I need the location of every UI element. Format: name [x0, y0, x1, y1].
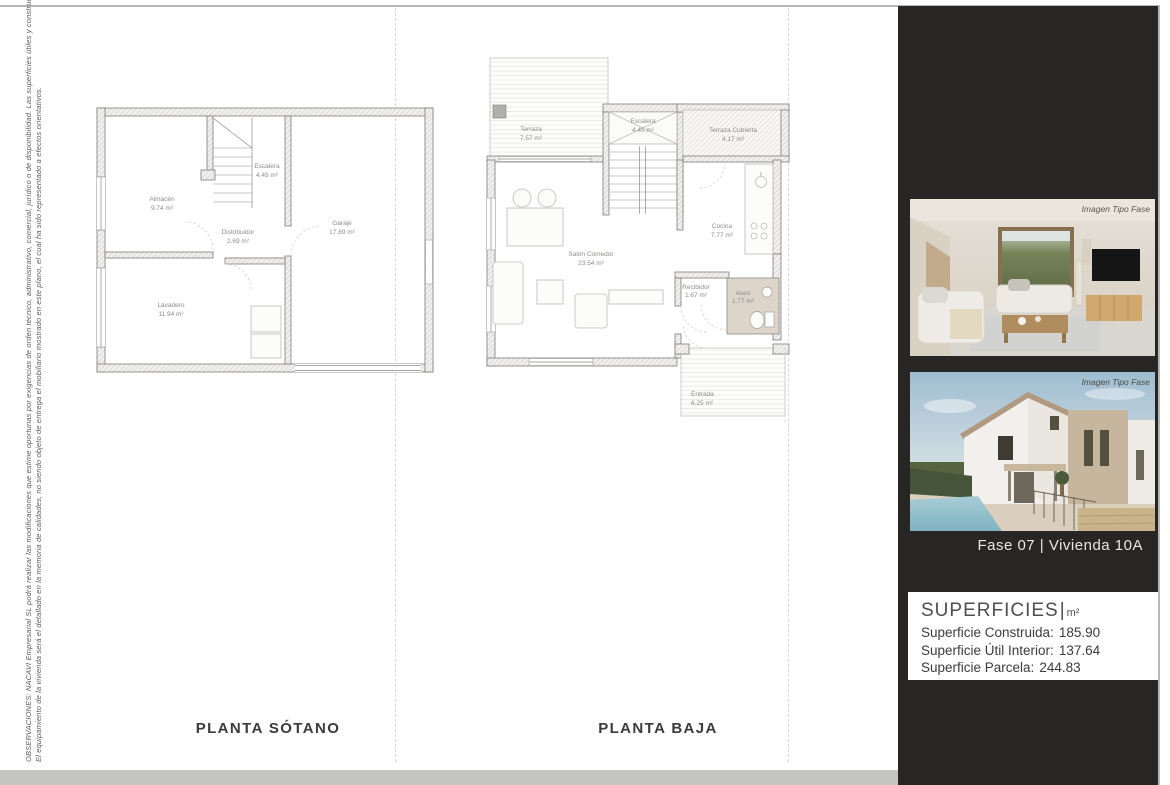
baja-cocina-fixtures [745, 164, 773, 254]
watermark-text: Imagen Tipo Fase [1082, 377, 1151, 387]
render-image-exterior: Imagen Tipo Fase [910, 372, 1155, 531]
watermark-text: Imagen Tipo Fase [1082, 204, 1151, 214]
room-area: 9.74 m² [151, 205, 174, 212]
row-label: Superficie Parcela: [921, 660, 1034, 675]
room-area: 1.77 m² [732, 298, 755, 305]
observations-line-1: OBSERVACIONES: NACAVI Empresarial SL pod… [24, 0, 34, 762]
row-value: 137.64 [1059, 643, 1100, 658]
superficie-parcela-row: Superficie Parcela:244.83 [921, 659, 1158, 677]
plan-title-baja: PLANTA BAJA [548, 720, 768, 737]
row-value: 185.90 [1059, 625, 1100, 640]
baja-terraza [490, 58, 608, 158]
room-area: 6.25 m² [691, 400, 714, 407]
room-label: Lavadero [157, 302, 184, 309]
unit-label: Fase 07 | Vivienda 10A [977, 537, 1143, 554]
sotano-stairs [213, 118, 252, 208]
room-label: Recibidor [682, 284, 710, 291]
room-label: Cocina [712, 223, 733, 230]
sotano-fixtures [251, 306, 421, 372]
plan-sheet: OBSERVACIONES: NACAVI Empresarial SL pod… [0, 0, 1170, 785]
baja-salon-furniture [493, 189, 663, 328]
floorplan-sotano: Almacén 9.74 m² Escalera 4.45 m² Distrib… [95, 100, 440, 380]
observations-line-2: El equipamiento de la vivienda será el d… [34, 0, 44, 762]
baja-aseo [727, 278, 779, 334]
page-right-border [1158, 5, 1160, 785]
room-label: Aseo [736, 290, 751, 297]
superficies-title: SUPERFICIES|m² [921, 600, 1158, 624]
room-area: 23.54 m² [578, 260, 604, 267]
room-area: 2.69 m² [227, 238, 250, 245]
plan-title-sotano: PLANTA SÓTANO [158, 720, 378, 737]
superficie-util-row: Superficie Útil Interior:137.64 [921, 642, 1158, 660]
room-label: Terraza Cubierta [709, 127, 757, 134]
superficie-construida-row: Superficie Construida:185.90 [921, 624, 1158, 642]
baja-entrada [675, 344, 789, 424]
room-area: 7.77 m² [711, 232, 734, 239]
room-area: 4.45 m² [632, 127, 655, 134]
observations-note: OBSERVACIONES: NACAVI Empresarial SL pod… [24, 0, 44, 762]
sidebar: Imagen Tipo Fase [898, 6, 1158, 785]
interior-render-graphic: Imagen Tipo Fase [910, 199, 1155, 356]
baja-walls [487, 156, 790, 366]
sotano-room-labels: Almacén 9.74 m² Escalera 4.45 m² Distrib… [149, 163, 355, 318]
row-value: 244.83 [1039, 660, 1080, 675]
room-label: Entrada [691, 391, 714, 398]
room-label: Almacén [149, 196, 175, 203]
room-label: Distribuidor [222, 229, 256, 236]
room-area: 11.94 m² [158, 311, 184, 318]
room-label: Salón Comedor [568, 251, 614, 258]
superficies-separator: | [1060, 600, 1066, 621]
room-area: 4.45 m² [256, 172, 279, 179]
room-label: Garaje [332, 220, 352, 227]
row-label: Superficie Útil Interior: [921, 643, 1054, 658]
room-area: 17.89 m² [329, 229, 355, 236]
render-image-interior: Imagen Tipo Fase [910, 199, 1155, 356]
exterior-render-graphic: Imagen Tipo Fase [910, 372, 1155, 531]
superficies-box: SUPERFICIES|m² Superficie Construida:185… [908, 592, 1158, 680]
floorplan-baja: Terraza 7.57 m² Escalera 4.45 m² Terraza… [485, 48, 800, 433]
superficies-unit: m² [1067, 607, 1080, 619]
room-area: 7.57 m² [520, 135, 543, 142]
room-area: 1.67 m² [685, 292, 708, 299]
superficies-title-text: SUPERFICIES [921, 600, 1059, 621]
room-area: 4.17 m² [722, 136, 745, 143]
room-label: Escalera [630, 118, 656, 125]
bottom-strip [0, 770, 898, 785]
room-label: Terraza [520, 126, 542, 133]
baja-doors [681, 162, 727, 348]
room-label: Escalera [254, 163, 280, 170]
row-label: Superficie Construida: [921, 625, 1054, 640]
